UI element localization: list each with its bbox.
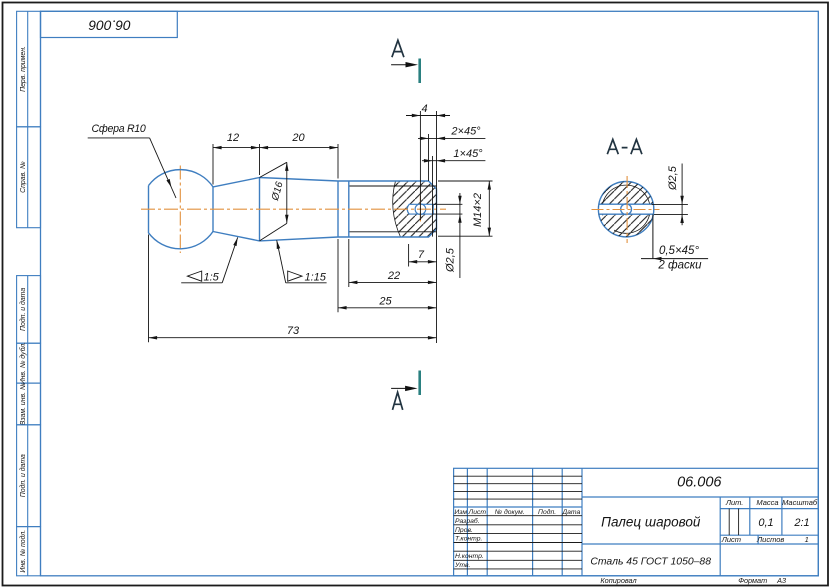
svg-text:Пров.: Пров. — [455, 527, 473, 534]
svg-text:Подп. и дата: Подп. и дата — [19, 454, 27, 497]
svg-text:Утв.: Утв. — [454, 562, 471, 569]
svg-text:06.006: 06.006 — [88, 18, 131, 33]
svg-text:Подп. и дата: Подп. и дата — [19, 288, 27, 331]
svg-text:Перв. примен.: Перв. примен. — [20, 46, 27, 92]
svg-text:№ докум.: № докум. — [495, 508, 525, 516]
svg-text:0,5×45°: 0,5×45° — [659, 245, 699, 257]
svg-text:2 фаски: 2 фаски — [657, 260, 702, 272]
svg-text:Масса: Масса — [756, 498, 778, 507]
svg-text:Листов: Листов — [756, 535, 784, 544]
svg-text:Изм: Изм — [454, 509, 467, 516]
svg-text:1:5: 1:5 — [204, 272, 220, 284]
svg-text:Палец шаровой: Палец шаровой — [601, 515, 701, 530]
svg-text:Подп.: Подп. — [538, 508, 556, 516]
svg-text:Копировал: Копировал — [600, 576, 636, 585]
svg-text:M14×2: M14×2 — [472, 193, 484, 227]
svg-text:Взам. инв. №: Взам. инв. № — [20, 382, 27, 425]
svg-text:1:15: 1:15 — [305, 272, 327, 284]
svg-text:0,1: 0,1 — [758, 517, 773, 529]
svg-text:Масштаб: Масштаб — [782, 498, 818, 507]
svg-text:Инв. № подл.: Инв. № подл. — [19, 530, 27, 573]
svg-text:Инв. № дубл.: Инв. № дубл. — [19, 342, 27, 384]
svg-text:4: 4 — [421, 103, 427, 115]
svg-text:2×45°: 2×45° — [450, 126, 481, 138]
svg-text:2:1: 2:1 — [793, 517, 809, 529]
svg-text:Сталь 45 ГОСТ 1050–88: Сталь 45 ГОСТ 1050–88 — [590, 557, 711, 568]
svg-text:Формат: Формат — [738, 576, 767, 585]
svg-text:1×45°: 1×45° — [453, 148, 483, 160]
svg-text:Ø2,5: Ø2,5 — [667, 165, 679, 191]
svg-text:Лист: Лист — [721, 535, 741, 544]
svg-text:12: 12 — [227, 132, 239, 144]
svg-text:06.006: 06.006 — [677, 475, 722, 491]
svg-text:Н.контр.: Н.контр. — [455, 553, 484, 560]
svg-text:Разраб.: Разраб. — [455, 517, 480, 525]
svg-text:20: 20 — [291, 132, 305, 144]
svg-text:A3: A3 — [776, 576, 786, 585]
svg-text:1: 1 — [805, 535, 809, 544]
svg-text:Дата: Дата — [561, 509, 580, 516]
svg-text:Сфера R10: Сфера R10 — [92, 123, 146, 135]
svg-text:Т.контр.: Т.контр. — [455, 536, 483, 543]
svg-text:Справ. №: Справ. № — [20, 161, 27, 193]
svg-text:7: 7 — [418, 249, 425, 261]
svg-text:Ø2,5: Ø2,5 — [445, 247, 457, 273]
svg-text:73: 73 — [287, 325, 300, 337]
svg-text:25: 25 — [378, 295, 392, 307]
svg-text:22: 22 — [387, 270, 400, 282]
svg-text:Лит.: Лит. — [725, 498, 744, 507]
svg-text:Лист: Лист — [468, 509, 487, 516]
